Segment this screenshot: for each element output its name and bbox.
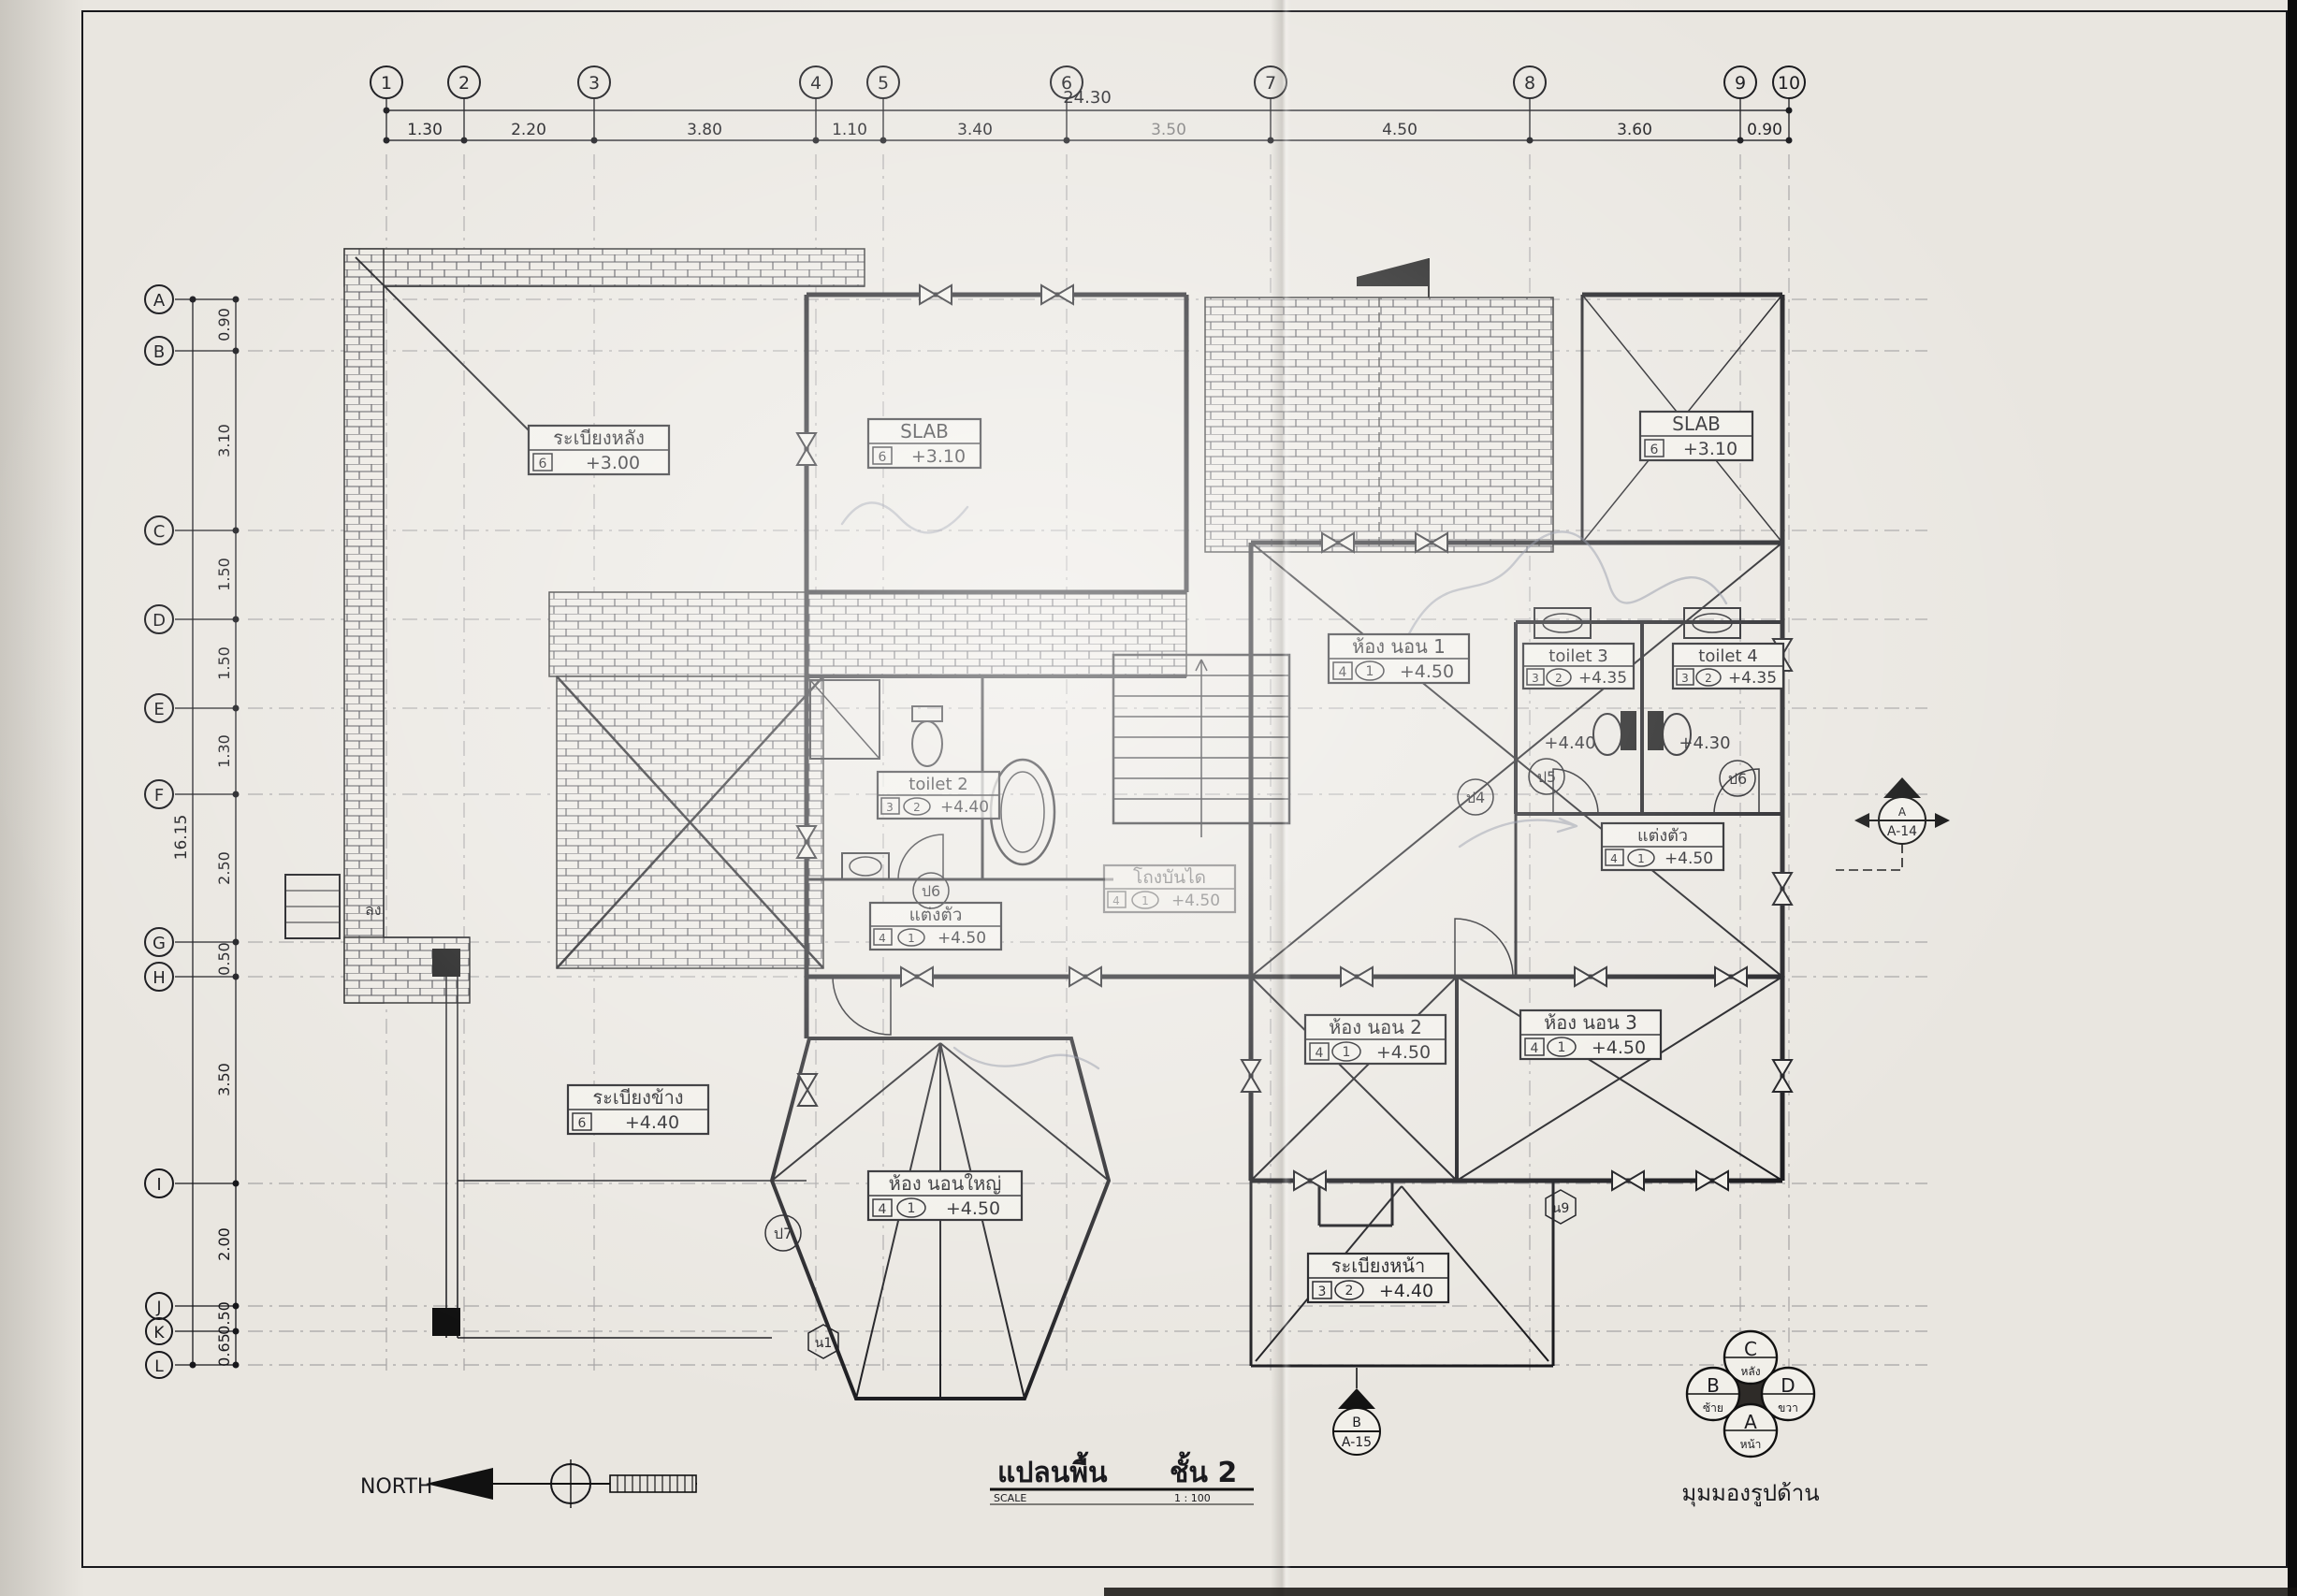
svg-text:SLAB: SLAB [1672,413,1721,435]
svg-text:toilet 2: toilet 2 [909,775,967,794]
svg-text:ระเบียงหลัง: ระเบียงหลัง [553,427,645,449]
svg-text:+4.50: +4.50 [1665,849,1713,868]
svg-text:แปลนพื้น: แปลนพื้น [997,1451,1108,1489]
svg-text:มุมมองรูปด้าน: มุมมองรูปด้าน [1681,1480,1819,1507]
svg-text:4: 4 [879,932,886,945]
svg-text:A: A [1898,805,1907,819]
svg-text:C: C [1744,1338,1757,1360]
door-tag-text: ป6 [922,882,940,900]
room-label: ระเบียงข้าง 6 +4.40 [568,1085,708,1134]
svg-text:+4.50: +4.50 [1376,1042,1431,1063]
svg-text:NORTH: NORTH [360,1475,432,1499]
svg-text:D: D [1781,1374,1795,1397]
room-label: ห้อง นอน 3 4 1 +4.50 [1520,1010,1661,1059]
grid-col-label: 2 [458,73,470,94]
dim-left: 0.50 [215,942,233,976]
svg-text:A-15: A-15 [1342,1435,1372,1450]
door-tag-text: ป6 [1728,770,1747,788]
dim-left: 3.50 [215,1063,233,1096]
svg-text:+3.10: +3.10 [911,446,966,467]
svg-text:+4.50: +4.50 [946,1198,1000,1219]
dim-left: 1.50 [215,646,233,680]
svg-text:4: 4 [1112,894,1120,907]
svg-text:toilet 3: toilet 3 [1548,646,1607,666]
svg-text:+4.40: +4.40 [940,798,989,817]
grid-row-label: G [153,934,166,953]
dim-top: 1.30 [407,121,443,139]
room-label: แต่งตัว 4 1 +4.50 [870,903,1001,950]
svg-text:1 : 100: 1 : 100 [1174,1492,1211,1504]
svg-text:+4.35: +4.35 [1728,669,1777,688]
grid-row-label: A [153,291,166,311]
svg-text:6: 6 [1650,443,1659,457]
room-label: toilet 2 3 2 +4.40 [878,772,999,819]
svg-text:A: A [1744,1411,1757,1433]
dim-top: 3.60 [1617,121,1652,139]
svg-text:ซ้าย: ซ้าย [1703,1401,1723,1415]
scan-edge-right [2288,0,2297,1596]
svg-text:1: 1 [1558,1040,1566,1055]
svg-text:4: 4 [1339,665,1347,680]
svg-text:+4.50: +4.50 [1171,892,1220,910]
svg-text:SCALE: SCALE [994,1492,1026,1504]
svg-text:2: 2 [1555,672,1563,685]
grid-col-label: 8 [1524,73,1535,94]
svg-text:ระเบียงข้าง: ระเบียงข้าง [592,1086,683,1109]
svg-text:1: 1 [908,1201,916,1216]
svg-text:3: 3 [886,801,894,814]
svg-text:+4.40: +4.40 [1379,1281,1433,1301]
svg-text:+4.40: +4.40 [625,1112,679,1133]
scan-edge-bottom [1104,1588,2297,1596]
room-label: ระเบียงหลัง 6 +3.00 [529,426,669,474]
svg-text:1: 1 [1343,1045,1351,1060]
svg-text:4: 4 [1610,852,1618,865]
grid-col-label: 9 [1735,73,1746,94]
svg-text:6: 6 [879,450,887,465]
grid-row-label: L [154,1357,164,1376]
staircase [1113,655,1289,837]
svg-text:3: 3 [1532,672,1539,685]
plan-title: แปลนพื้น ชั้น 2 SCALE 1 : 100 [990,1451,1254,1504]
svg-text:โถงบันได: โถงบันได [1133,866,1206,888]
elevation-view-key: C หลัง B ซ้าย D ขวา A หน้า มุมมองรูปด้าน [1681,1331,1819,1507]
svg-text:B: B [1352,1415,1361,1430]
dim-top: 4.50 [1382,121,1417,139]
dim-top: 0.90 [1747,121,1782,139]
svg-text:4: 4 [1531,1041,1539,1056]
left-dimension-lines: 16.15 0.90 3.10 1.50 1.50 1.30 2.50 0.50… [172,297,240,1369]
dim-total-left: 16.15 [172,815,191,861]
room-label: SLAB 6 +3.10 [868,419,981,468]
grid-row-label: D [153,611,166,631]
dim-top: 2.20 [511,121,546,139]
level-text: +4.40 [1544,733,1595,753]
dim-left: 2.00 [215,1227,233,1261]
section-marker-a15: B A-15 [1333,1368,1380,1455]
scanned-floor-plan-sheet: 24.30 1.30 2.20 3.80 1.10 3.40 3.50 4.50… [0,0,2297,1596]
svg-text:ห้อง นอน 1: ห้อง นอน 1 [1352,635,1446,658]
svg-text:4: 4 [1316,1046,1324,1061]
svg-text:+3.10: +3.10 [1683,439,1737,459]
svg-text:1: 1 [1366,664,1374,679]
dim-left: 1.50 [215,558,233,591]
svg-text:A-14: A-14 [1887,824,1917,839]
door-tag-text: ป5 [1537,768,1556,786]
svg-text:1: 1 [1637,852,1645,865]
grid-row-label: F [154,786,164,805]
svg-text:6: 6 [539,457,547,472]
svg-text:3: 3 [1681,672,1689,685]
svg-text:3: 3 [1318,1284,1327,1299]
dim-left: 0.90 [215,308,233,341]
svg-text:2: 2 [1705,672,1712,685]
level-text: +4.30 [1679,733,1730,753]
walls [285,286,1782,1399]
dim-top: 3.80 [687,121,722,139]
svg-text:ห้อง นอน 3: ห้อง นอน 3 [1544,1011,1637,1034]
stair-down-text: ลง [365,901,382,919]
svg-text:ชั้น 2: ชั้น 2 [1170,1451,1237,1489]
room-label: โถงบันได 4 1 +4.50 [1104,865,1235,912]
section-marker-a14: A A-14 [1836,777,1950,870]
page-fold-seam [1271,0,1291,1596]
room-label: SLAB 6 +3.10 [1640,412,1752,460]
dim-left: 0.65 [215,1333,233,1367]
svg-text:+4.50: +4.50 [938,929,986,948]
grid-col-label: 3 [589,73,600,94]
svg-text:6: 6 [578,1116,587,1131]
window-tag-text: น9 [1552,1201,1569,1216]
svg-text:toilet 4: toilet 4 [1698,646,1757,666]
grid-row-label: J [155,1299,161,1317]
room-label: toilet 4 3 2 +4.35 [1673,644,1783,689]
svg-text:2: 2 [1345,1284,1354,1299]
room-label: แต่งตัว 4 1 +4.50 [1602,823,1723,870]
svg-text:แต่งตัว: แต่งตัว [1637,826,1688,846]
svg-text:1: 1 [908,932,915,945]
grid-row-label: E [153,700,164,719]
room-label: ห้อง นอน 2 4 1 +4.50 [1305,1015,1446,1064]
room-label: ห้อง นอน 1 4 1 +4.50 [1329,634,1469,683]
grid-lines [248,154,1927,1371]
window-tag-text: น1 [815,1336,832,1351]
svg-text:+3.00: +3.00 [586,453,640,473]
room-label: ห้อง นอนใหญ่ 4 1 +4.50 [868,1171,1022,1220]
north-arrow: NORTH [360,1459,697,1508]
svg-text:SLAB: SLAB [900,420,949,443]
svg-text:ระเบียงหน้า: ระเบียงหน้า [1331,1255,1426,1277]
grid-row-label: B [153,342,165,362]
dim-top: 3.50 [1151,121,1186,139]
floor-plan-drawing: 24.30 1.30 2.20 3.80 1.10 3.40 3.50 4.50… [0,0,2297,1596]
grid-col-label: 6 [1061,73,1072,94]
svg-text:4: 4 [879,1202,887,1217]
door-tag-text: ป7 [774,1225,792,1242]
grid-row-label: H [153,968,166,988]
grid-col-label: 4 [810,73,821,94]
dim-top: 1.10 [832,121,867,139]
dim-top: 3.40 [957,121,993,139]
dim-left: 2.50 [215,851,233,885]
grid-row-label: I [156,1175,161,1195]
room-label: toilet 3 3 2 +4.35 [1523,644,1634,689]
sheet-frame [82,11,2287,1567]
dim-left: 3.10 [215,424,233,457]
door-tag-text: ป4 [1466,789,1485,806]
svg-text:B: B [1707,1374,1720,1397]
svg-text:2: 2 [913,801,921,814]
room-label: ระเบียงหน้า 3 2 +4.40 [1308,1254,1448,1302]
svg-text:ห้อง นอนใหญ่: ห้อง นอนใหญ่ [889,1172,1002,1195]
grid-col-label: 1 [381,73,392,94]
svg-text:+4.50: +4.50 [1592,1037,1646,1058]
grid-col-label: 10 [1778,73,1800,94]
svg-text:หน้า: หน้า [1740,1438,1762,1451]
grid-col-label: 5 [878,73,889,94]
svg-text:ห้อง นอน 2: ห้อง นอน 2 [1329,1016,1422,1038]
grid-row-label: K [153,1324,165,1342]
svg-text:+4.50: +4.50 [1400,661,1454,682]
dim-left: 1.30 [215,734,233,768]
svg-text:ขวา: ขวา [1778,1401,1798,1415]
svg-text:หลัง: หลัง [1740,1365,1760,1378]
svg-text:1: 1 [1141,894,1149,907]
grid-row-label: C [153,522,166,542]
svg-text:+4.35: +4.35 [1578,669,1627,688]
